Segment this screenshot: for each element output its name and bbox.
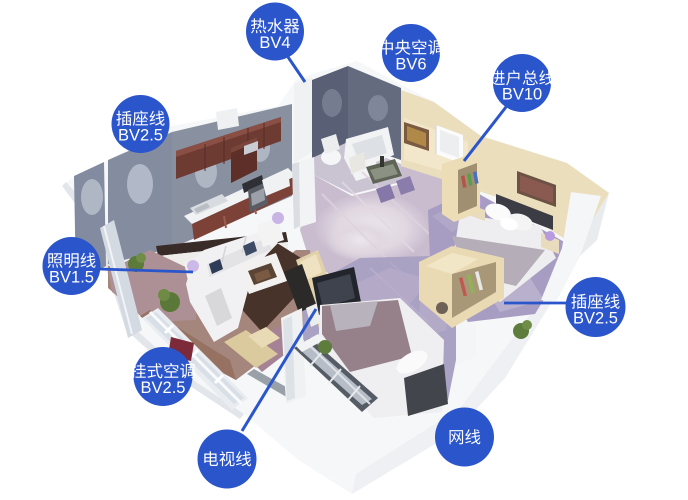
svg-text:BV10: BV10	[502, 86, 542, 104]
svg-text:BV2.5: BV2.5	[141, 379, 186, 397]
svg-text:BV4: BV4	[259, 34, 290, 52]
svg-text:BV2.5: BV2.5	[573, 310, 618, 328]
svg-text:BV2.5: BV2.5	[118, 127, 163, 145]
svg-text:BV6: BV6	[395, 56, 426, 74]
svg-text:BV1.5: BV1.5	[49, 269, 94, 287]
